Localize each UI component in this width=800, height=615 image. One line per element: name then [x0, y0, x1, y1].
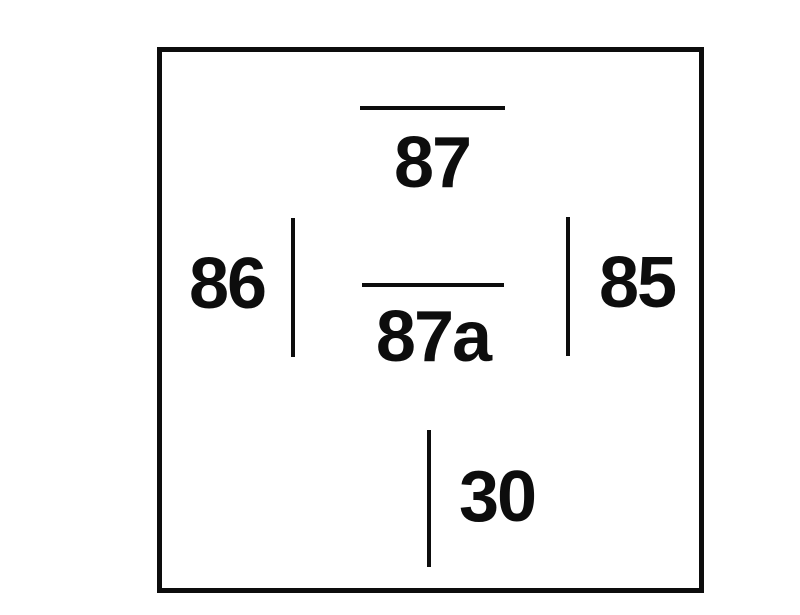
- pin-30-label: 30: [422, 461, 572, 533]
- pin-87-terminal-line: [360, 106, 505, 110]
- pin-87a-terminal-line: [362, 283, 504, 287]
- diagram-canvas: 87 87a 86 85 30: [0, 0, 800, 615]
- pin-85-label: 85: [562, 247, 712, 319]
- pin-87-label: 87: [357, 127, 507, 199]
- pin-87a-label: 87a: [358, 301, 508, 373]
- pin-86-label: 86: [152, 248, 302, 320]
